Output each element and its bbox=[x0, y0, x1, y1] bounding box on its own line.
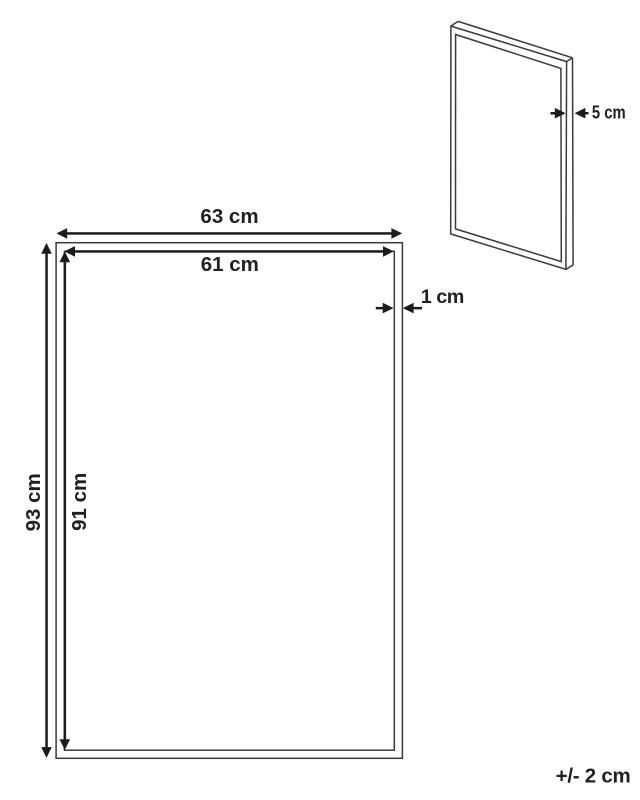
svg-text:1 cm: 1 cm bbox=[421, 286, 464, 308]
svg-text:+/- 2 cm: +/- 2 cm bbox=[556, 765, 631, 788]
svg-text:5 cm: 5 cm bbox=[592, 102, 626, 123]
svg-text:63 cm: 63 cm bbox=[200, 205, 258, 228]
svg-text:61 cm: 61 cm bbox=[201, 253, 259, 276]
svg-text:91 cm: 91 cm bbox=[68, 473, 91, 531]
svg-text:93 cm: 93 cm bbox=[22, 473, 45, 531]
